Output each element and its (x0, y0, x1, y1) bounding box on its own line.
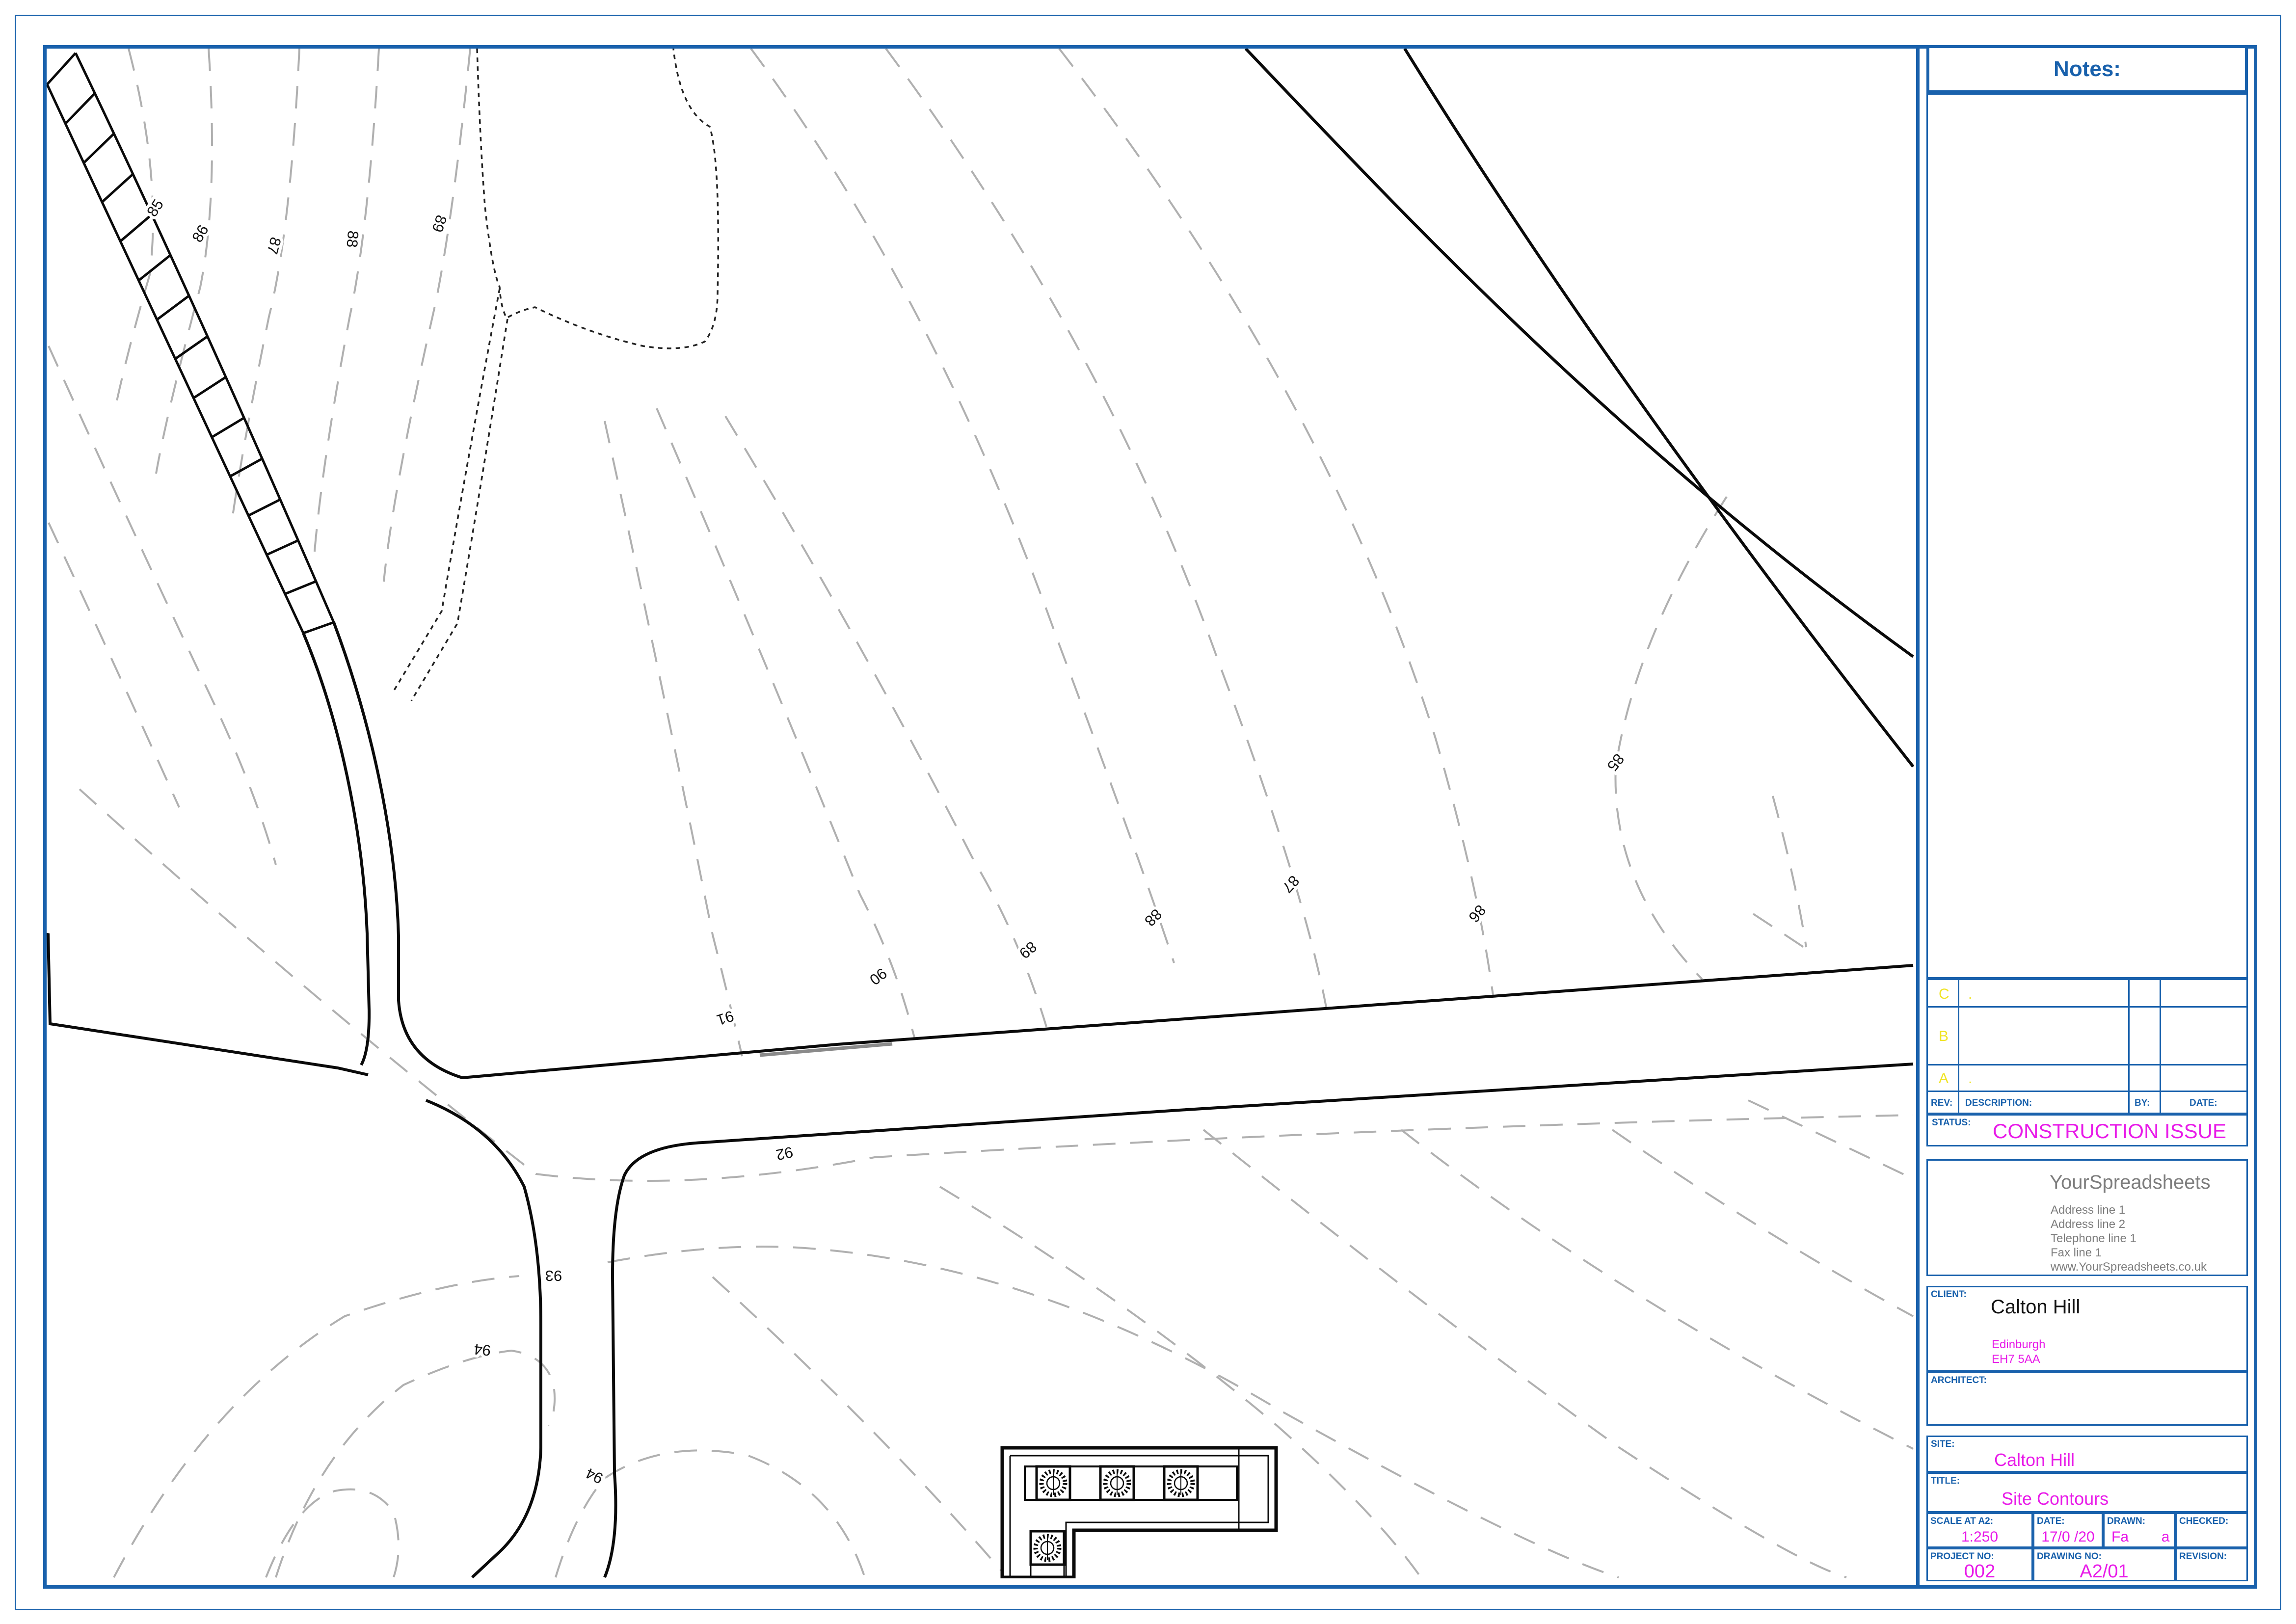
site-value: Calton Hill (1994, 1450, 2075, 1470)
drawn-cell: DRAWN: Fa a (2103, 1513, 2175, 1548)
hatch-tick (303, 622, 334, 633)
contour-lines (49, 49, 1913, 1577)
notes-label: Notes: (1929, 57, 2245, 81)
embankment-hatch (47, 53, 334, 633)
hatch-tick (176, 336, 208, 358)
drawing-sheet: { "panel": { "notes_label": "Notes:", "r… (0, 0, 2296, 1624)
hatch-tick (231, 459, 263, 477)
notes-area[interactable] (1926, 93, 2248, 979)
hatch-tick (47, 53, 76, 84)
title-label: TITLE: (1931, 1476, 1960, 1487)
rev-row-description (1959, 1006, 2130, 1064)
title-block-panel: Notes: C . B A . REV: DESCRIPTION: BY: D… (1926, 45, 2248, 1581)
architect-label: ARCHITECT: (1931, 1375, 1987, 1386)
drawing-no-cell: DRAWING NO: A2/01 (2033, 1548, 2175, 1581)
rev-header: REV: (1931, 1098, 1952, 1109)
client-address-line: Edinburgh (1992, 1337, 2045, 1352)
building-footprint (1002, 1448, 1276, 1577)
company-name: YourSpreadsheets (2050, 1171, 2211, 1194)
contour-elevation-label: 93 (545, 1267, 562, 1284)
scale-cell: SCALE AT A2: 1:250 (1926, 1513, 2033, 1548)
contour-elevation-label: 90 (866, 964, 890, 988)
revision-cell: REVISION: (2175, 1548, 2248, 1581)
scale-value: 1:250 (1928, 1529, 2031, 1545)
dotted-boundary (394, 49, 718, 701)
rev-row-date (2161, 1064, 2248, 1091)
revision-label: REVISION: (2179, 1551, 2227, 1562)
company-address-line: Address line 2 (2051, 1217, 2207, 1231)
client-box: CLIENT: Calton Hill Edinburgh EH7 5AA (1926, 1286, 2248, 1372)
contour-elevation-label: 89 (428, 213, 450, 235)
road-lines (47, 49, 1913, 1577)
contour-elevation-label: 85 (143, 196, 167, 220)
contour-elevation-label: 87 (264, 235, 285, 256)
hatch-tick (194, 377, 226, 398)
contour-elevation-label: 94 (583, 1464, 606, 1487)
hatch-tick (139, 255, 170, 280)
client-address-line: EH7 5AA (1992, 1352, 2045, 1367)
status-box: STATUS: CONSTRUCTION ISSUE (1926, 1114, 2248, 1146)
map-right-border (1916, 45, 1920, 1585)
checked-label: CHECKED: (2179, 1516, 2228, 1527)
rev-row-letter: C (1939, 986, 1949, 1003)
rev-row-description: . (1968, 986, 1972, 1003)
company-box: YourSpreadsheets Address line 1 Address … (1926, 1159, 2248, 1276)
client-name: Calton Hill (1991, 1296, 2080, 1318)
contour-labels: 85868788898990918887868592939494 (143, 196, 1628, 1487)
description-header: DESCRIPTION: (1965, 1098, 2032, 1109)
date-value: 17/0 /20 (2034, 1529, 2102, 1545)
title-box: TITLE: Site Contours (1926, 1472, 2248, 1513)
checked-cell: CHECKED: (2175, 1513, 2248, 1548)
drawn-label: DRAWN: (2107, 1516, 2145, 1527)
project-no-value: 002 (1928, 1561, 2031, 1582)
contour-elevation-label: 92 (774, 1144, 795, 1164)
company-address-line: Fax line 1 (2051, 1246, 2207, 1260)
company-website: www.YourSpreadsheets.co.uk (2051, 1260, 2207, 1274)
company-address-line: Address line 1 (2051, 1203, 2207, 1217)
hatch-tick (212, 418, 244, 437)
hatch-tick (285, 582, 316, 594)
contour-elevation-label: 88 (343, 230, 362, 248)
rev-row-date (2161, 1006, 2248, 1064)
rev-row-by (2130, 979, 2161, 1006)
rev-row-by (2130, 1064, 2161, 1091)
scale-label: SCALE AT A2: (1930, 1516, 1993, 1527)
drawing-no-label: DRAWING NO: (2037, 1551, 2102, 1562)
architect-box: ARCHITECT: (1926, 1372, 2248, 1426)
hatch-tick (102, 174, 133, 202)
rev-row-letter: B (1939, 1028, 1949, 1045)
notes-header: Notes: (1926, 45, 2248, 93)
site-contour-map: 85868788898990918887868592939494 (47, 49, 1915, 1578)
rev-row-date (2161, 979, 2248, 1006)
date-cell: DATE: 17/0 /20 (2033, 1513, 2103, 1548)
rev-row-by (2130, 1006, 2161, 1064)
company-address: Address line 1 Address line 2 Telephone … (2051, 1203, 2207, 1274)
hatch-tick (84, 133, 114, 162)
hatch-tick (121, 214, 152, 241)
drawn-value: Fa a (2105, 1529, 2174, 1545)
status-value: CONSTRUCTION ISSUE (1977, 1119, 2242, 1143)
client-label: CLIENT: (1931, 1289, 1967, 1300)
date-header: DATE: (2189, 1098, 2217, 1109)
by-header: BY: (2135, 1098, 2150, 1109)
contour-elevation-label: 91 (715, 1007, 736, 1029)
contour-elevation-label: 89 (1016, 938, 1040, 962)
contour-elevation-label: 85 (1603, 750, 1628, 774)
rev-row-letter: A (1939, 1070, 1949, 1087)
hatch-tick (66, 93, 95, 124)
site-box: SITE: Calton Hill (1926, 1436, 2248, 1472)
site-label: SITE: (1931, 1439, 1955, 1450)
contour-elevation-label: 94 (473, 1340, 492, 1359)
drawing-title: Site Contours (2002, 1489, 2109, 1509)
contour-elevation-label: 86 (1465, 902, 1489, 926)
contour-elevation-label: 86 (188, 222, 212, 245)
hatch-tick (249, 500, 280, 515)
rev-row-description: . (1968, 1070, 1972, 1087)
hatch-tick (158, 296, 189, 319)
drawing-no-value: A2/01 (2034, 1561, 2174, 1582)
status-label: STATUS: (1932, 1118, 1971, 1128)
date-label: DATE: (2037, 1516, 2065, 1527)
project-no-cell: PROJECT NO: 002 (1926, 1548, 2033, 1581)
project-no-label: PROJECT NO: (1930, 1551, 1994, 1562)
revision-table: C . B A . REV: DESCRIPTION: BY: DATE: (1926, 979, 2248, 1114)
hatch-tick (267, 540, 298, 555)
client-address: Edinburgh EH7 5AA (1992, 1337, 2045, 1367)
company-address-line: Telephone line 1 (2051, 1231, 2207, 1246)
contour-elevation-label: 87 (1279, 872, 1303, 896)
